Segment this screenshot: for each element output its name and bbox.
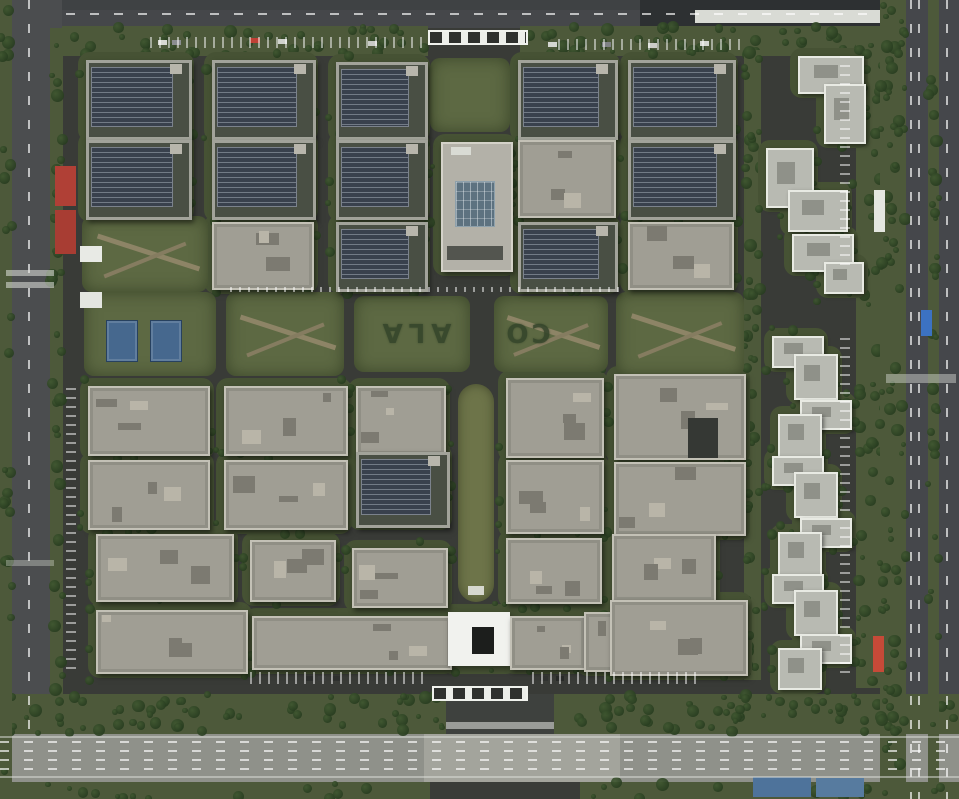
roof-patch [714, 144, 726, 154]
roof-patch [596, 64, 608, 74]
lane-marking [66, 388, 76, 670]
tree [723, 709, 730, 716]
roof-patch [644, 564, 658, 579]
roof-patch [598, 621, 606, 636]
tree [878, 576, 889, 587]
satellite-view: ALA CO [0, 0, 959, 799]
tree [35, 730, 41, 736]
tree [495, 549, 500, 554]
tree [929, 201, 936, 208]
solar-panels [342, 148, 408, 206]
tree [85, 569, 94, 578]
roof-patch [102, 615, 111, 622]
tree [591, 794, 596, 799]
roof-patch [784, 343, 803, 354]
tree [695, 720, 704, 729]
tree [643, 704, 654, 715]
lane-marking [558, 39, 744, 50]
roof-band [447, 246, 503, 260]
lane-marking [0, 741, 959, 743]
container-red [55, 210, 76, 254]
tree [439, 725, 444, 730]
tree [751, 356, 758, 363]
tree [933, 334, 939, 340]
green-verge [0, 0, 12, 799]
tree [767, 665, 776, 674]
lawn-text-ala: ALA [366, 312, 462, 352]
tree [8, 582, 16, 590]
tree [45, 782, 51, 788]
tree [746, 277, 753, 284]
roof-patch [563, 414, 576, 422]
building-concrete [88, 386, 210, 456]
roof-patch [283, 418, 296, 435]
tree [767, 444, 775, 452]
roof-patch [160, 550, 178, 564]
tree [891, 424, 904, 437]
tree [54, 331, 60, 337]
roof-patch [170, 64, 182, 74]
tree [492, 601, 497, 606]
tree [875, 419, 885, 429]
tree [733, 718, 738, 723]
roof-patch [564, 423, 585, 440]
tree [601, 23, 614, 36]
tree [54, 478, 66, 490]
tree [416, 714, 421, 719]
tree [648, 49, 658, 59]
tree [898, 40, 905, 47]
tree [754, 283, 766, 295]
roof-patch [164, 487, 181, 500]
roof-patch [804, 365, 820, 382]
tree [177, 697, 185, 705]
tree [378, 718, 387, 727]
tarp-blue [753, 777, 811, 797]
tree [752, 324, 759, 331]
median-cap [468, 586, 484, 595]
tree [416, 537, 425, 546]
roof-notch [688, 418, 718, 458]
tree [902, 85, 907, 90]
tree [934, 554, 943, 563]
roof-patch [673, 256, 693, 270]
lane-marking [250, 672, 430, 684]
road-marking [0, 776, 959, 778]
truck-blue [921, 310, 932, 336]
tree [761, 604, 768, 611]
roof-patch [619, 517, 635, 528]
courtyard [472, 627, 494, 654]
roof-patch [294, 64, 306, 74]
tree [741, 164, 749, 172]
tree [577, 717, 587, 727]
lane-marking [910, 0, 912, 799]
road-marking [6, 270, 54, 276]
lane-marking [0, 750, 959, 752]
tree [930, 208, 940, 218]
roof-patch [266, 257, 290, 272]
solar-panels [524, 68, 598, 126]
tree [563, 605, 570, 612]
tree [864, 785, 871, 792]
tree [894, 49, 903, 58]
tree [687, 705, 699, 717]
tree [213, 520, 219, 526]
roof-patch [279, 496, 297, 502]
tree [854, 698, 861, 705]
roof-patch [359, 565, 374, 580]
tree [495, 521, 502, 528]
roof-patch [804, 483, 820, 500]
tree [115, 794, 120, 799]
roof-patch [647, 226, 667, 241]
tree [927, 383, 938, 394]
lane-marking [230, 287, 620, 292]
tree [49, 73, 54, 78]
tree [828, 709, 833, 714]
building-concrete [506, 538, 602, 604]
tree [890, 362, 902, 374]
tree [715, 24, 724, 33]
tree [359, 27, 367, 35]
tree [747, 132, 755, 140]
tree [204, 691, 211, 698]
tree [75, 70, 84, 79]
container-red [873, 636, 884, 672]
roof-patch [682, 559, 696, 574]
roof-patch [530, 571, 542, 585]
tree [896, 400, 908, 412]
roof-patch [169, 643, 193, 657]
solar-panels [92, 148, 172, 206]
tree [899, 19, 904, 24]
road-marking [6, 282, 54, 288]
tree [887, 711, 899, 723]
tree [895, 284, 904, 293]
tree [293, 710, 302, 719]
lawn [430, 58, 510, 132]
tree [182, 708, 188, 714]
roof-patch [558, 151, 573, 158]
tree [55, 713, 64, 722]
tree [788, 709, 797, 718]
tree [54, 43, 59, 48]
tree [328, 694, 334, 700]
roof-patch [565, 581, 580, 595]
tree [819, 698, 827, 706]
tree [949, 714, 958, 723]
roof-patch [130, 401, 148, 410]
lane-marking [28, 0, 30, 730]
tree [901, 510, 910, 519]
solar-panels [218, 148, 296, 206]
tree [929, 110, 939, 120]
tree [851, 693, 857, 699]
tree [197, 726, 207, 736]
roof-patch [649, 503, 665, 517]
tree [113, 22, 124, 33]
road-marking [886, 374, 956, 383]
roof-patch [833, 269, 847, 280]
roof-patch [802, 200, 824, 215]
tree [889, 238, 898, 247]
tree [147, 711, 153, 717]
tree [626, 704, 635, 713]
tree [752, 305, 762, 315]
road-marking [6, 560, 54, 566]
roof-patch [560, 647, 568, 658]
tree [132, 700, 144, 712]
roof-patch [259, 231, 269, 242]
lane-marking [0, 759, 959, 761]
tree [936, 195, 942, 201]
roof-patch [788, 424, 804, 440]
roof-patch [191, 566, 210, 584]
tree [116, 705, 124, 713]
tree [859, 605, 871, 617]
tree [930, 135, 943, 148]
roof-helipad [451, 147, 471, 155]
building-concrete [506, 378, 604, 458]
tree [344, 51, 354, 61]
roof-patch [804, 601, 820, 618]
tree [119, 34, 125, 40]
tree [898, 661, 907, 670]
tree [201, 64, 212, 75]
tree [53, 78, 62, 87]
tree [201, 135, 207, 141]
solar-panels [342, 70, 408, 126]
tree [928, 589, 934, 595]
roof-patch [96, 399, 117, 407]
roof-patch [675, 467, 695, 480]
tree [156, 700, 166, 710]
tree [826, 26, 838, 38]
solar-panels [634, 68, 716, 126]
roof-patch [242, 430, 262, 444]
tree [359, 699, 368, 708]
tree [865, 495, 876, 506]
roof-patch [580, 507, 590, 521]
roof-patch [714, 64, 726, 74]
tree [57, 156, 65, 164]
tree [892, 162, 899, 169]
tree [890, 649, 899, 658]
tree [779, 28, 786, 35]
roof-patch [596, 226, 608, 236]
tree [730, 27, 736, 33]
tree [888, 217, 896, 225]
tree [741, 694, 750, 703]
tree [614, 706, 623, 715]
roof-patch [233, 476, 255, 493]
tree [899, 213, 910, 224]
roof-patch [148, 482, 157, 494]
tree [569, 22, 579, 32]
car [548, 42, 557, 47]
tree [744, 239, 757, 252]
tree [162, 24, 172, 34]
roof-patch [170, 144, 182, 154]
tree [743, 314, 750, 321]
tree [883, 94, 890, 101]
lane-marking [946, 0, 948, 799]
roof-patch [386, 408, 394, 415]
solar-panels [362, 460, 430, 514]
tree [811, 704, 820, 713]
roof-patch [650, 621, 666, 631]
tree [78, 697, 87, 706]
tree [57, 269, 64, 276]
tree [761, 568, 769, 576]
median-green [458, 384, 494, 602]
tree [894, 127, 904, 137]
building-concrete [252, 616, 452, 670]
tree [761, 366, 771, 376]
roof-patch [108, 558, 127, 571]
tree [2, 226, 10, 234]
roof-patch [788, 542, 804, 558]
tree [349, 693, 360, 704]
tree [324, 703, 336, 715]
tree [280, 529, 290, 539]
roof-patch [530, 502, 547, 513]
guard-booth [80, 292, 102, 308]
building-concrete [610, 600, 748, 676]
tree [886, 62, 898, 74]
tree [239, 553, 248, 562]
roof-patch [112, 507, 122, 522]
tree [794, 28, 800, 34]
lane-marking [840, 338, 850, 674]
tree [741, 177, 752, 188]
roof-patch [313, 483, 324, 496]
tree [93, 724, 105, 736]
roof-patch [361, 432, 379, 443]
tree [606, 722, 617, 733]
lane-marking [66, 13, 882, 15]
tree [145, 795, 152, 799]
tree [893, 247, 899, 253]
tree [749, 440, 755, 446]
roof-patch [660, 388, 677, 402]
solar-panels [92, 68, 172, 126]
tree [2, 467, 7, 472]
tree [49, 580, 61, 592]
tree [7, 313, 15, 321]
structure-white [874, 190, 885, 232]
tree [689, 49, 696, 56]
tree [51, 89, 64, 102]
tree [4, 348, 14, 358]
tree [51, 460, 64, 473]
lane-marking [150, 37, 422, 48]
tree [788, 325, 799, 336]
tree [813, 126, 821, 134]
tree [860, 727, 869, 736]
tree [741, 64, 749, 72]
tree [923, 89, 934, 100]
tree [813, 281, 821, 289]
building-concrete [614, 374, 746, 460]
container-red [55, 166, 76, 206]
crosswalk [446, 722, 554, 729]
tree [868, 43, 874, 49]
tree [883, 14, 889, 20]
tree [397, 30, 404, 37]
tree [777, 213, 784, 220]
tree [325, 200, 331, 206]
tree [656, 778, 669, 791]
tree [886, 387, 894, 395]
roof-patch [274, 561, 286, 579]
tree [930, 173, 943, 186]
tree [348, 26, 357, 35]
tree [799, 37, 807, 45]
tree [871, 149, 879, 157]
tree [77, 524, 83, 530]
tree [769, 325, 775, 331]
tree [767, 645, 777, 655]
tree [627, 695, 636, 704]
tree [188, 706, 200, 718]
tree [518, 605, 526, 613]
tree [236, 713, 242, 719]
gate-north [428, 30, 528, 45]
tree [811, 22, 821, 32]
tree [890, 727, 899, 736]
roof-patch [777, 162, 795, 184]
tree [789, 700, 799, 710]
roof-patch [537, 626, 545, 632]
roof-patch [118, 423, 141, 430]
roof-patch [428, 456, 440, 466]
tree [886, 703, 894, 711]
solar-panels [524, 230, 598, 278]
roof-patch [294, 144, 306, 154]
tree [856, 530, 867, 541]
roof-patch [706, 403, 727, 410]
tree [85, 645, 93, 653]
tree [5, 159, 17, 171]
tree [899, 716, 909, 726]
tree [367, 26, 374, 33]
tree [0, 146, 6, 152]
skylight [456, 182, 494, 226]
building-concrete [510, 616, 586, 670]
building-concrete [88, 460, 210, 530]
tree [813, 298, 821, 306]
tree [57, 134, 68, 145]
tarp-blue [816, 778, 864, 797]
tree [894, 576, 903, 585]
roof-patch [406, 226, 418, 236]
tree [879, 389, 885, 395]
lane-marking [918, 0, 920, 799]
roof-patch [360, 590, 378, 600]
solar-panels [218, 68, 296, 126]
roof-patch [564, 193, 580, 207]
tree [888, 527, 893, 532]
roof-patch [373, 624, 392, 632]
solar-panels [634, 148, 716, 206]
tree [887, 142, 893, 148]
tree [333, 789, 343, 799]
tree [325, 177, 334, 186]
tree [727, 702, 734, 709]
tree [273, 49, 282, 58]
